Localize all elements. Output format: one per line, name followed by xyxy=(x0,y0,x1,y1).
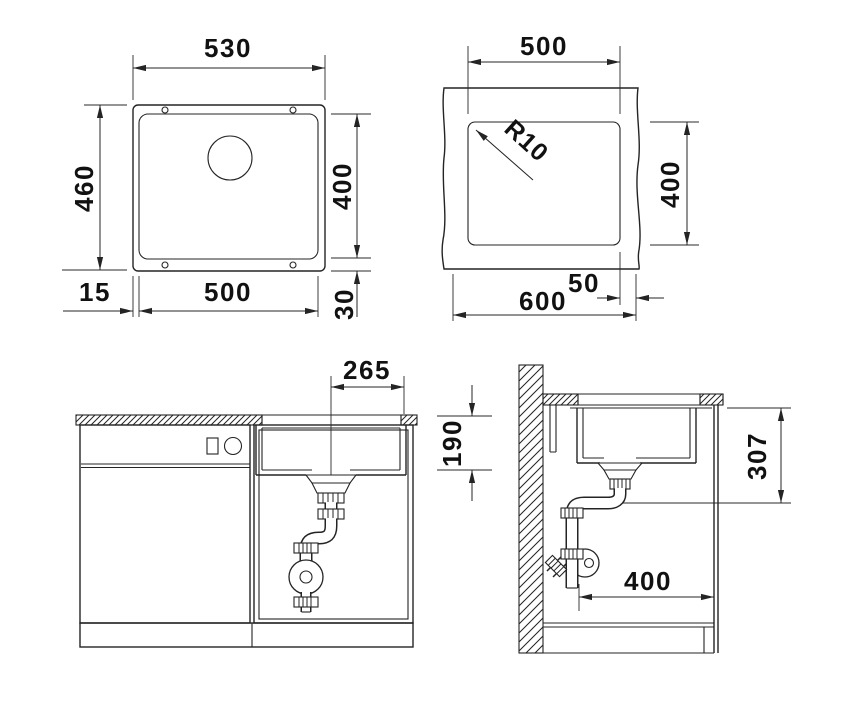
countertop-hatch-front xyxy=(700,394,723,405)
trap-coupling-lower xyxy=(294,597,318,607)
dim-label-worktop-width: 600 xyxy=(519,286,567,316)
dim-label-drain-to-edge: 265 xyxy=(343,355,391,385)
sink-installation-drawing: 530 460 400 30 15 500 xyxy=(0,0,862,703)
strainer-collar-side xyxy=(610,479,630,489)
pipe-coupling-upper-side xyxy=(561,508,583,518)
dim-label-inner-width: 500 xyxy=(204,277,252,307)
strainer-flange-side xyxy=(598,463,642,470)
trap-coupling-mid xyxy=(294,543,318,553)
strainer-body-side xyxy=(604,470,636,479)
page-background xyxy=(0,0,862,703)
dim-label-inner-height: 400 xyxy=(327,162,357,210)
dim-label-cutout-width: 500 xyxy=(520,31,568,61)
dim-label-edge-margin: 50 xyxy=(568,268,600,298)
strainer-flange xyxy=(306,475,356,483)
technical-drawing-page: 530 460 400 30 15 500 xyxy=(0,0,862,703)
dim-label-flange-bottom: 30 xyxy=(329,288,359,320)
strainer-body xyxy=(312,483,350,493)
pipe-coupling-lower-side xyxy=(561,549,583,559)
dim-label-clearance: 400 xyxy=(624,566,672,596)
countertop-hatch-left xyxy=(76,415,262,425)
strainer-collar xyxy=(318,493,344,503)
dim-label-bowl-depth: 190 xyxy=(437,419,467,467)
wall-section xyxy=(519,365,543,653)
dim-label-cutout-height: 400 xyxy=(655,160,685,208)
dim-label-flange-left: 15 xyxy=(79,277,111,307)
countertop-hatch-right xyxy=(401,415,417,425)
trap-nut-upper xyxy=(318,509,344,519)
trap-loop xyxy=(289,560,323,594)
dim-label-outer-height: 460 xyxy=(69,164,99,212)
countertop-hatch-back xyxy=(543,394,578,405)
dim-label-outlet-height: 307 xyxy=(742,432,772,480)
dim-label-outer-width: 530 xyxy=(204,33,252,63)
